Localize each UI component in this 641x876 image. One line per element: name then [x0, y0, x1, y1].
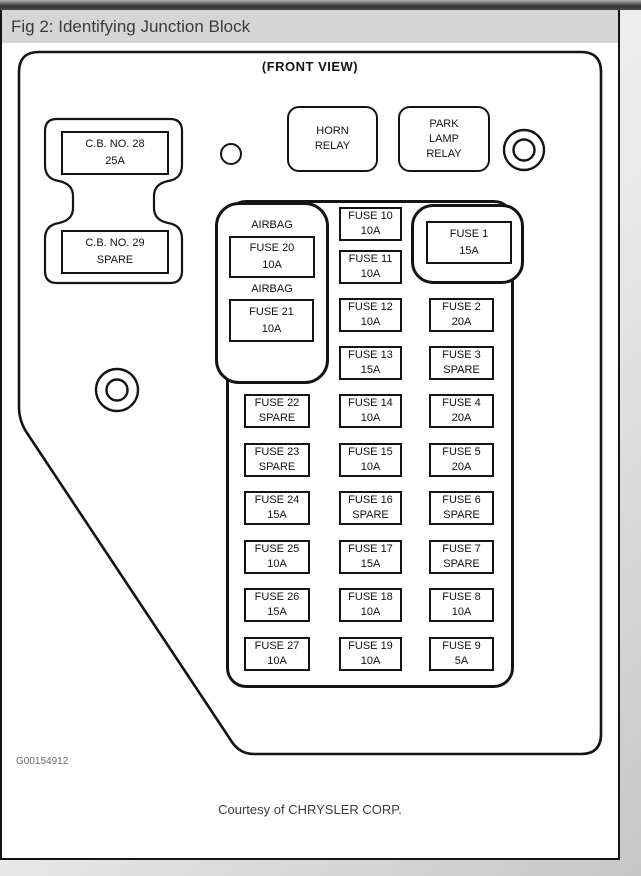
fuse-name: FUSE 14 — [348, 396, 393, 411]
fuse-rating: SPARE — [443, 508, 479, 523]
fuse-name: FUSE 16 — [348, 493, 393, 508]
fuse-box-fuse-5: FUSE 520A — [429, 443, 494, 477]
fuse-box-fuse-18: FUSE 1810A — [339, 588, 402, 622]
airbag-label-1: AIRBAG — [215, 219, 329, 231]
fuse-name: FUSE 15 — [348, 445, 393, 460]
fuse-rating: SPARE — [259, 460, 295, 475]
fuse-21-rating: 10A — [262, 321, 282, 338]
cb-29-rating: SPARE — [97, 252, 133, 269]
fuse-rating: 10A — [361, 315, 381, 330]
courtesy-note: Courtesy of CHRYSLER CORP. — [2, 802, 618, 817]
fuse-name: FUSE 7 — [442, 542, 481, 557]
horn-relay-line1: HORN — [316, 124, 348, 139]
fuse-rating: 10A — [361, 460, 381, 475]
fuse-rating: 15A — [361, 557, 381, 572]
fuse-box-fuse-22: FUSE 22SPARE — [244, 394, 310, 428]
fuse-box-fuse-26: FUSE 2615A — [244, 588, 310, 622]
fuse-name: FUSE 4 — [442, 396, 481, 411]
front-view-label: (FRONT VIEW) — [2, 59, 618, 74]
fuse-name: FUSE 19 — [348, 639, 393, 654]
fuse-rating: 10A — [452, 605, 472, 620]
fuse-name: FUSE 18 — [348, 590, 393, 605]
fuse-box-fuse-3: FUSE 3SPARE — [429, 346, 494, 380]
small-mounting-hole — [221, 144, 241, 164]
fuse-box-fuse-14: FUSE 1410A — [339, 394, 402, 428]
fuse-name: FUSE 9 — [442, 639, 481, 654]
fuse-1-name: FUSE 1 — [450, 226, 489, 243]
fuse-box-fuse-19: FUSE 1910A — [339, 637, 402, 671]
fuse-box-fuse-12: FUSE 1210A — [339, 298, 402, 332]
fuse-1-rating: 15A — [459, 243, 479, 260]
diagram-canvas: (FRONT VIEW) C.B. NO. 28 25A C.B. NO. 29… — [2, 43, 618, 858]
fuse-box-fuse-8: FUSE 810A — [429, 588, 494, 622]
fuse-20-rating: 10A — [262, 257, 282, 274]
fuse-box-fuse-24: FUSE 2415A — [244, 491, 310, 525]
fuse-name: FUSE 8 — [442, 590, 481, 605]
fuse-20-name: FUSE 20 — [250, 240, 295, 257]
fuse-box-fuse-6: FUSE 6SPARE — [429, 491, 494, 525]
fuse-name: FUSE 3 — [442, 348, 481, 363]
fuse-rating: 5A — [455, 654, 468, 669]
fuse-box-fuse-27: FUSE 2710A — [244, 637, 310, 671]
fuse-box-fuse-10: FUSE 1010A — [339, 207, 402, 241]
fuse-name: FUSE 23 — [255, 445, 300, 460]
fuse-name: FUSE 12 — [348, 300, 393, 315]
cb-28-rating: 25A — [105, 153, 125, 170]
fuse-rating: SPARE — [443, 557, 479, 572]
fuse-name: FUSE 24 — [255, 493, 300, 508]
cb-29-box: C.B. NO. 29 SPARE — [61, 230, 169, 274]
fuse-box-fuse-7: FUSE 7SPARE — [429, 540, 494, 574]
fuse-rating: 15A — [361, 363, 381, 378]
fuse-box-fuse-25: FUSE 2510A — [244, 540, 310, 574]
fuse-name: FUSE 11 — [349, 252, 393, 267]
park-lamp-relay-box: PARK LAMP RELAY — [398, 106, 490, 172]
fuse-rating: SPARE — [259, 411, 295, 426]
cb-28-box: C.B. NO. 28 25A — [61, 131, 169, 175]
fuse-name: FUSE 17 — [348, 542, 393, 557]
park-lamp-relay-line2: LAMP — [429, 132, 459, 147]
fuse-box-fuse-11: FUSE 1110A — [339, 250, 402, 284]
fuse-rating: SPARE — [443, 363, 479, 378]
figure-page: Fig 2: Identifying Junction Block (FRONT… — [0, 10, 620, 860]
fuse-box-fuse-9: FUSE 95A — [429, 637, 494, 671]
graphic-id: G00154912 — [16, 756, 68, 767]
fuse-21-name: FUSE 21 — [249, 304, 294, 321]
fuse-rating: 20A — [452, 460, 472, 475]
fuse-name: FUSE 13 — [348, 348, 393, 363]
fuse-rating: 10A — [361, 224, 381, 239]
horn-relay-line2: RELAY — [315, 139, 350, 154]
fuse-rating: 10A — [267, 654, 287, 669]
figure-title-bar: Fig 2: Identifying Junction Block — [2, 10, 618, 43]
fuse-box-fuse-15: FUSE 1510A — [339, 443, 402, 477]
fuse-box-fuse-2: FUSE 220A — [429, 298, 494, 332]
fuse-name: FUSE 25 — [255, 542, 300, 557]
fuse-rating: 10A — [361, 267, 381, 282]
fuse-rating: 10A — [361, 654, 381, 669]
fuse-rating: 10A — [267, 557, 287, 572]
fuse-box-fuse-21: FUSE 21 10A — [229, 299, 314, 342]
fuse-name: FUSE 26 — [255, 590, 300, 605]
fuse-box-fuse-20: FUSE 20 10A — [229, 236, 315, 278]
fuse-box-fuse-16: FUSE 16SPARE — [339, 491, 402, 525]
fuse-name: FUSE 2 — [442, 300, 481, 315]
right-mounting-hole-inner — [514, 140, 535, 161]
cb-29-name: C.B. NO. 29 — [85, 235, 144, 252]
fuse-rating: 15A — [267, 508, 287, 523]
fuse-name: FUSE 27 — [255, 639, 300, 654]
window-top-strip — [0, 0, 641, 10]
fuse-box-fuse-4: FUSE 420A — [429, 394, 494, 428]
cb-28-name: C.B. NO. 28 — [85, 136, 144, 153]
fuse-rating: 20A — [452, 315, 472, 330]
fuse-box-fuse-23: FUSE 23SPARE — [244, 443, 310, 477]
fuse-name: FUSE 5 — [442, 445, 481, 460]
fuse-rating: SPARE — [352, 508, 388, 523]
fuse-rating: 20A — [452, 411, 472, 426]
figure-window: Fig 2: Identifying Junction Block (FRONT… — [0, 0, 641, 876]
figure-title: Fig 2: Identifying Junction Block — [11, 17, 250, 36]
left-mounting-hole-inner — [107, 380, 128, 401]
fuse-box-fuse-1: FUSE 1 15A — [426, 221, 512, 264]
fuse-name: FUSE 6 — [442, 493, 481, 508]
fuse-box-fuse-13: FUSE 1315A — [339, 346, 402, 380]
fuse-rating: 10A — [361, 605, 381, 620]
fuse-rating: 15A — [267, 605, 287, 620]
park-lamp-relay-line3: RELAY — [426, 147, 461, 162]
fuse-name: FUSE 22 — [255, 396, 300, 411]
horn-relay-box: HORN RELAY — [287, 106, 378, 172]
fuse-box-fuse-17: FUSE 1715A — [339, 540, 402, 574]
fuse-name: FUSE 10 — [348, 209, 393, 224]
airbag-label-2: AIRBAG — [215, 283, 329, 295]
fuse-rating: 10A — [361, 411, 381, 426]
park-lamp-relay-line1: PARK — [429, 117, 458, 132]
